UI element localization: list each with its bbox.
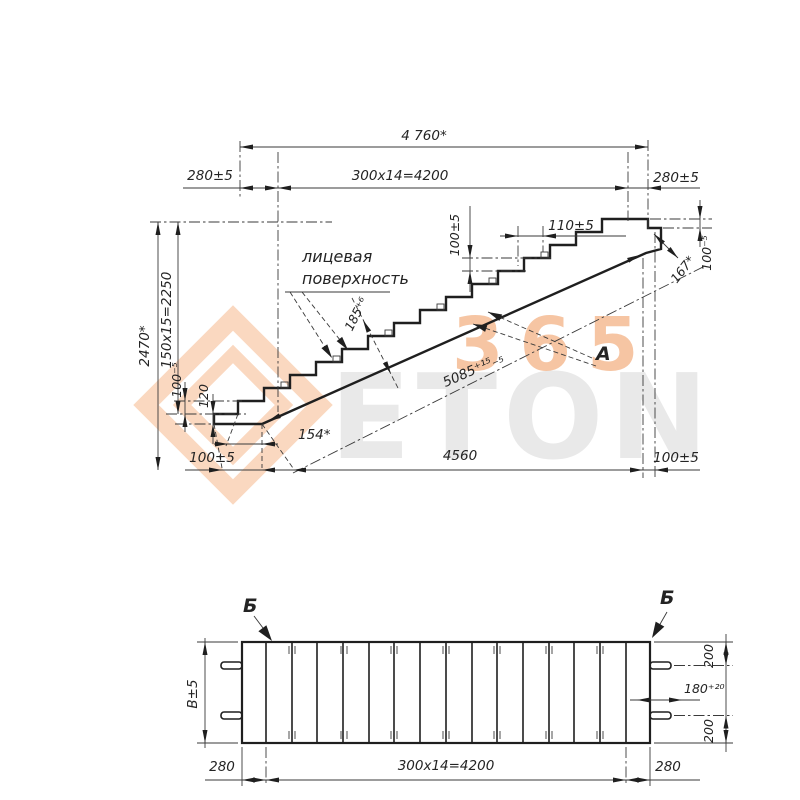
watermark-digits: 365 bbox=[452, 302, 654, 388]
dim-overall-length: 4 760* bbox=[401, 128, 447, 144]
dim-left-end-width: 280±5 bbox=[187, 168, 233, 184]
view-a-label: А bbox=[594, 343, 611, 365]
dim-plan-treads: 300x14=4200 bbox=[398, 758, 495, 774]
section-label-left: Б bbox=[243, 595, 257, 617]
dim-plan-width: В±5 bbox=[185, 679, 201, 708]
dim-upper-notch-height: 100⁻⁵ bbox=[699, 235, 714, 270]
face-note-line2: поверхность bbox=[302, 269, 409, 288]
section-marks bbox=[254, 612, 667, 644]
stair-drawing: ETON 365 bbox=[0, 0, 800, 800]
section-label-right: Б bbox=[660, 587, 674, 609]
dim-risers-formula: 150x15=2250 bbox=[159, 272, 175, 369]
dim-treads-formula: 300x14=4200 bbox=[352, 168, 449, 184]
dim-lower-end-thickness: 120 bbox=[196, 384, 211, 408]
dim-overall-height: 2470* bbox=[137, 325, 153, 366]
plan-view: Б Б В±5 200 180⁺²⁰ 200 280 300x14=4200 2… bbox=[185, 587, 733, 786]
lug-right-bottom bbox=[650, 712, 671, 719]
dim-tread-overlap: 110±5 bbox=[548, 218, 594, 234]
lug-left-bottom bbox=[221, 712, 242, 719]
plan-tread-dividers bbox=[266, 642, 626, 743]
lug-right-top bbox=[650, 662, 671, 669]
dim-riser-height: 100±5 bbox=[447, 214, 462, 256]
dim-nose-offset: 154* bbox=[298, 427, 331, 443]
stair-drawing-sheet: ETON 365 bbox=[0, 0, 800, 800]
face-note-line1: лицевая bbox=[301, 247, 373, 266]
dim-lug-spacing: 180⁺²⁰ bbox=[684, 681, 724, 696]
dim-upper-notch-cut: 167* bbox=[667, 253, 697, 286]
dim-clear-span: 4560 bbox=[443, 448, 477, 464]
dim-plan-left-end: 280 bbox=[209, 759, 235, 775]
dim-lower-bearing: 100±5 bbox=[189, 450, 235, 466]
dim-right-end-width: 280±5 bbox=[653, 170, 699, 186]
dim-plan-right-end: 280 bbox=[655, 759, 681, 775]
lug-left-top bbox=[221, 662, 242, 669]
dim-lower-step-height: 100⁻⁵ bbox=[169, 362, 184, 397]
dim-upper-bearing: 100±5 bbox=[653, 450, 699, 466]
dim-lug-offset-top: 200 bbox=[701, 644, 716, 668]
dim-lug-offset-bottom: 200 bbox=[701, 719, 716, 743]
